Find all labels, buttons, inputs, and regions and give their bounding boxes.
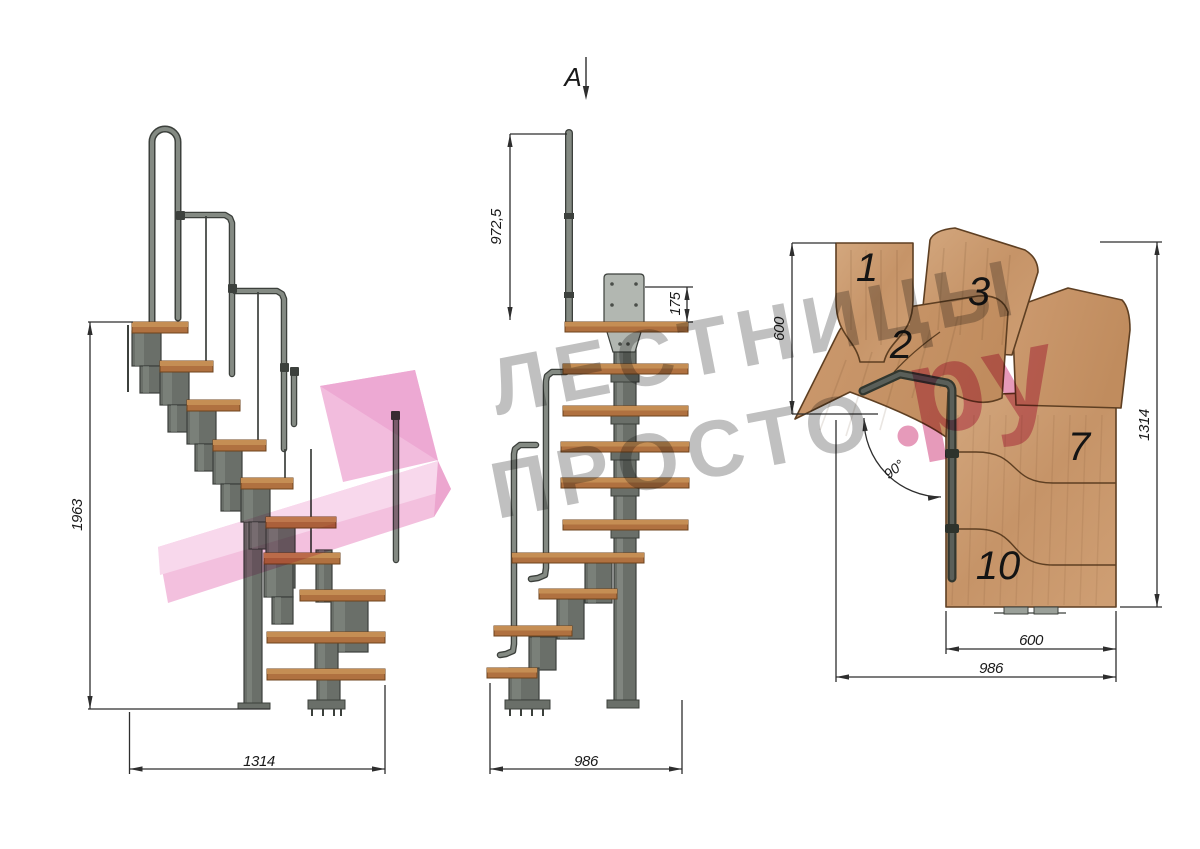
svg-text:10: 10 [976, 544, 1021, 588]
svg-text:1963: 1963 [69, 498, 86, 531]
svg-text:986: 986 [574, 753, 599, 770]
svg-text:972,5: 972,5 [488, 208, 505, 245]
svg-text:7: 7 [1068, 425, 1092, 469]
svg-text:600: 600 [1019, 632, 1044, 649]
svg-text:1314: 1314 [243, 753, 275, 770]
svg-text:1314: 1314 [1136, 409, 1153, 441]
svg-text:986: 986 [979, 660, 1004, 677]
svg-text:ру: ру [894, 296, 1069, 464]
svg-text:A: A [562, 62, 581, 92]
